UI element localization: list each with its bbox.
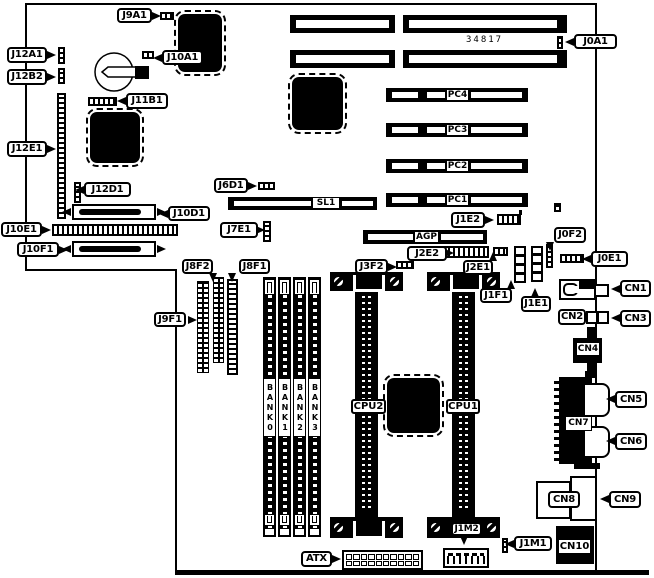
connector-inner: [79, 246, 141, 252]
slot-label-pc3: PC3: [446, 124, 469, 136]
slot-stripe: [427, 197, 445, 203]
dimm-label-bank0: BANK0: [263, 378, 276, 437]
label-cn6: CN6: [615, 433, 647, 450]
slot-label-cpu2: CPU2: [351, 399, 386, 414]
dimm-label-bank1: BANK1: [278, 378, 291, 437]
screw-hole: [487, 277, 496, 286]
connector-j1f1: [514, 246, 526, 283]
label-cn5: CN5: [615, 391, 647, 408]
atx-pin: [353, 554, 359, 560]
atx-pin: [383, 554, 389, 560]
atx-pin: [368, 554, 374, 560]
label-j10e1: J10E1: [1, 222, 42, 237]
label-cn3: CN3: [620, 310, 651, 327]
pointer: [606, 437, 615, 445]
label-cn7: CN7: [565, 416, 592, 431]
pointer: [117, 97, 126, 105]
atx-pin: [376, 554, 382, 560]
chip-ic: [387, 378, 440, 433]
screw-hole: [334, 523, 343, 532]
label-j1m1: J1M1: [514, 536, 552, 551]
label-cn1: CN1: [620, 280, 651, 297]
label-j10f1: J10F1: [17, 242, 59, 257]
connector-j0a1: [557, 36, 563, 49]
pointer: [152, 12, 161, 20]
slot-stripe: [342, 201, 373, 206]
atx-pin: [346, 561, 352, 567]
dimm-latch: [279, 514, 290, 526]
label-j12d1: J12D1: [84, 182, 131, 197]
slot-label-pc2: PC2: [446, 160, 469, 172]
slot-stripe: [392, 197, 418, 203]
connector-j10d1: [72, 204, 156, 220]
pointer: [611, 314, 620, 322]
slot-label-agp: AGP: [414, 231, 439, 243]
atx-pin: [398, 561, 404, 567]
label-atx: ATX: [301, 551, 332, 567]
pointer: [582, 255, 591, 263]
connector-j9f1: [197, 281, 209, 373]
slot-stripe: [234, 201, 311, 206]
atx-pin: [413, 561, 419, 567]
pointer: [489, 252, 497, 261]
atx-pin: [346, 554, 352, 560]
label-j1f1: J1F1: [480, 288, 512, 303]
label-cn8: CN8: [548, 491, 580, 508]
slot-stripe: [392, 92, 418, 98]
pointer: [388, 263, 397, 271]
connector-j8f1: [227, 279, 238, 375]
slot-label-pc1: PC1: [446, 194, 469, 206]
screw-hole: [487, 523, 496, 532]
dimm-foot: [279, 528, 290, 536]
atx-power-connector: [342, 550, 423, 570]
atx-pin: [376, 561, 382, 567]
cpu2-bottom-bracket: [330, 517, 403, 538]
screw-hole: [431, 523, 440, 532]
atx-pin: [368, 561, 374, 567]
connector-j12b2: [58, 68, 65, 84]
dimm-latch: [309, 514, 320, 526]
dimm-latch: [294, 279, 305, 295]
atx-pin: [383, 561, 389, 567]
atx-pin: [405, 561, 411, 567]
pointer: [228, 273, 236, 282]
slot-stripe: [427, 92, 445, 98]
label-j0e1: J0E1: [591, 251, 628, 267]
slot-stripe: [427, 127, 445, 133]
slot-stripe: [471, 127, 522, 133]
pointer: [460, 536, 468, 545]
cpu2-top-bracket: [330, 272, 403, 291]
atx-pin: [361, 554, 367, 560]
dimm-label-bank3: BANK3: [308, 378, 321, 437]
connector-j11b1: [88, 97, 117, 106]
pointer: [75, 186, 84, 194]
bracket-notch: [353, 521, 385, 539]
label-j1e1: J1E1: [521, 296, 551, 312]
pointer: [507, 280, 515, 289]
connector-small: [554, 203, 561, 212]
dimm-label-bank2: BANK2: [293, 378, 306, 437]
pointer: [59, 246, 68, 254]
label-cn10: CN10: [558, 539, 591, 554]
pointer: [485, 216, 494, 224]
label-j1e2: J1E2: [451, 212, 485, 228]
connector-j0e1: [560, 254, 584, 263]
board-edge-bottom: [175, 570, 649, 575]
pointer: [159, 210, 168, 218]
atx-pin: [398, 554, 404, 560]
pointer: [445, 249, 454, 257]
atx-pin: [405, 554, 411, 560]
atx-pin: [353, 561, 359, 567]
slot-stripe: [409, 55, 557, 63]
pointer: [332, 555, 341, 563]
connector-j12a1: [58, 47, 65, 64]
label-j0f2: J0F2: [554, 227, 586, 243]
atx-pin: [361, 561, 367, 567]
pointer: [565, 38, 574, 46]
board-number: 34817: [466, 35, 503, 45]
board-edge-top: [25, 3, 597, 5]
label-j8f1: J8F1: [239, 259, 270, 274]
pointer: [47, 73, 56, 81]
label-j12b2: J12B2: [7, 69, 47, 85]
dimm-latch: [279, 279, 290, 295]
pointer: [209, 273, 217, 282]
atx-pin: [390, 561, 396, 567]
slot-stripe: [296, 55, 389, 63]
slot-stripe: [392, 163, 418, 169]
connector-cn1-plug: [594, 284, 609, 297]
screw-hole: [390, 523, 399, 532]
atx-pin: [413, 554, 419, 560]
label-j12e1: J12E1: [7, 141, 47, 157]
connector-end-mark: [157, 245, 166, 253]
label-j3f2: J3F2: [355, 259, 388, 274]
atx-pin: [390, 554, 396, 560]
connector-j6d1: [258, 182, 275, 190]
dimm-foot: [309, 528, 320, 536]
slot-stripe: [296, 20, 389, 28]
connector-cn3: [597, 311, 609, 324]
dimm-latch: [294, 514, 305, 526]
connector-j10f1: [72, 241, 156, 257]
pointer: [256, 226, 265, 234]
dimm-latch: [309, 279, 320, 295]
bracket-notch: [353, 275, 385, 292]
pointer: [42, 226, 51, 234]
pointer: [531, 288, 539, 297]
board-edge-notch-h: [25, 269, 177, 271]
pointer: [611, 285, 620, 293]
connector-j8f2: [213, 277, 224, 363]
label-cn4: CN4: [576, 342, 600, 356]
label-j0a1: J0A1: [574, 34, 617, 49]
connector-inner: [79, 209, 141, 215]
pointer: [188, 316, 197, 324]
label-cn9: CN9: [609, 491, 641, 508]
slot-label-pc4: PC4: [446, 89, 469, 101]
label-j10d1: J10D1: [168, 206, 210, 221]
screw-hole: [431, 277, 440, 286]
label-j6d1: J6D1: [214, 178, 248, 193]
pointer: [546, 242, 554, 251]
pointer: [505, 540, 514, 548]
connector-teeth: [447, 556, 485, 564]
label-cn2: CN2: [558, 309, 586, 325]
dimm-foot: [264, 528, 275, 536]
screw-hole: [334, 277, 343, 286]
label-j9a1: J9A1: [117, 8, 152, 23]
connector-cn1-detail: [579, 281, 594, 289]
connector-j10e1: [52, 224, 178, 236]
connector-end-mark: [62, 208, 71, 216]
pointer: [600, 495, 609, 503]
motherboard-diagram: 34817 PC4 PC3 PC2 PC1 SL1 AGP: [0, 0, 654, 578]
label-j2e1: J2E1: [463, 260, 493, 275]
slot-stripe: [392, 127, 418, 133]
pointer: [248, 182, 257, 190]
slot-stripe: [427, 163, 445, 169]
slot-stripe: [441, 234, 483, 240]
chip-ic: [292, 77, 343, 130]
slot-stripe: [471, 163, 522, 169]
slot-stripe: [409, 20, 557, 28]
label-j1m2: J1M2: [451, 522, 482, 536]
label-j2e2: J2E2: [407, 246, 447, 261]
bracket-notch: [450, 275, 482, 292]
connector-j1e2: [497, 214, 521, 225]
slot-stripe: [471, 92, 522, 98]
chip-ic: [90, 112, 140, 163]
dimm-latch: [264, 279, 275, 295]
connector-j1e1: [531, 246, 543, 282]
dimm-latch: [264, 514, 275, 526]
label-j12a1: J12A1: [7, 47, 47, 63]
label-j11b1: J11B1: [126, 93, 168, 109]
dimm-foot: [294, 528, 305, 536]
connector-j12e1: [57, 93, 66, 219]
connector-cn1-gap: [574, 286, 578, 293]
label-j9f1: J9F1: [154, 312, 186, 327]
label-j8f2: J8F2: [182, 259, 213, 274]
slot-label-sl1: SL1: [312, 197, 340, 209]
connector-j9a1: [160, 12, 174, 20]
connector-j3f2: [396, 261, 414, 269]
pointer: [47, 145, 56, 153]
pointer: [606, 395, 615, 403]
slot-label-cpu1: CPU1: [446, 399, 480, 414]
connector-j1m2: [443, 548, 489, 568]
slot-stripe: [471, 197, 522, 203]
screw-hole: [390, 277, 399, 286]
pointer: [153, 54, 162, 62]
label-j7e1: J7E1: [220, 222, 258, 238]
label-j10a1: J10A1: [162, 50, 203, 65]
pointer: [47, 51, 56, 59]
slot-stripe: [368, 234, 413, 240]
